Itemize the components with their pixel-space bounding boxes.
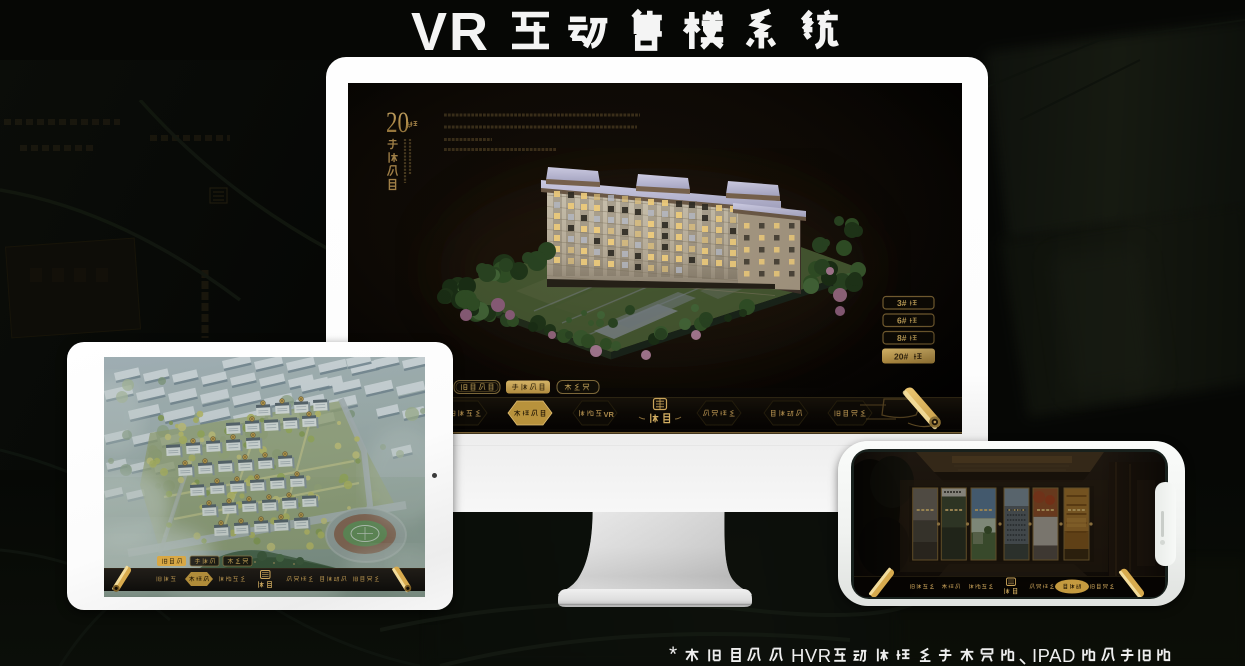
svg-text:8#: 8#	[897, 333, 907, 343]
svg-text:20: 20	[386, 106, 409, 139]
svg-text:HVR: HVR	[791, 645, 832, 666]
svg-text:20#: 20#	[894, 352, 908, 362]
svg-text:VR: VR	[411, 2, 490, 62]
svg-text:IPAD: IPAD	[1032, 645, 1076, 666]
svg-text:VR: VR	[604, 410, 615, 419]
svg-text:*: *	[669, 643, 677, 666]
svg-text:6#: 6#	[897, 316, 907, 326]
svg-text:3#: 3#	[897, 298, 907, 308]
